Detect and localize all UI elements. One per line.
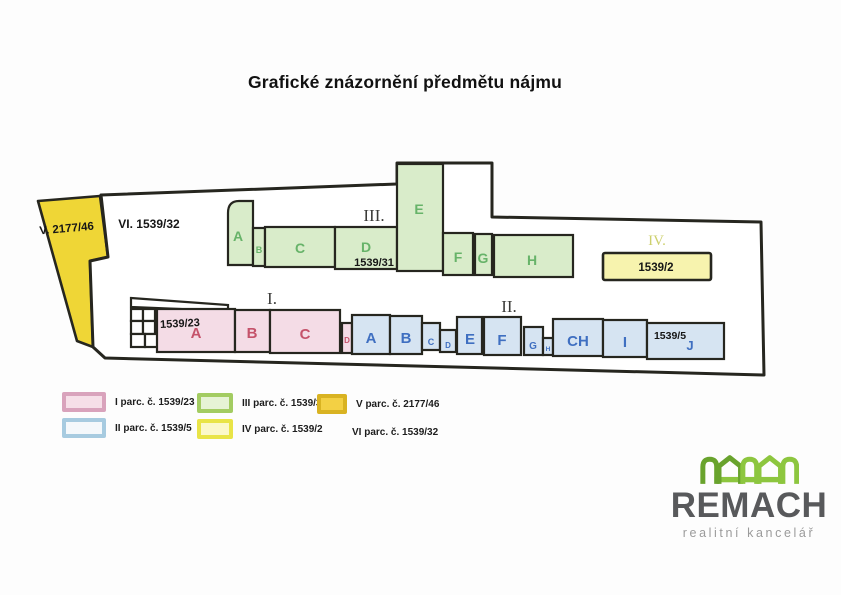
unit-label: F	[454, 249, 463, 265]
legend-item: I parc. č. 1539/23	[62, 392, 195, 412]
legend-label: II parc. č. 1539/5	[115, 423, 192, 434]
unit-label: A	[366, 330, 377, 347]
scanned-document-page: Grafické znázornění předmětu nájmu A B C…	[0, 0, 841, 595]
unit-label: I	[623, 334, 627, 351]
floor-plan-diagram: A B C D E F G H III. 1539/31 IV. 1539/2 …	[0, 0, 841, 460]
section-ii-numeral: II.	[501, 297, 517, 316]
logo-tagline-text: realitní kancelář	[683, 526, 815, 540]
unit-label: D	[344, 336, 350, 345]
houses-baseline	[714, 477, 783, 482]
unit-label: C	[295, 240, 305, 256]
unit-label: B	[401, 330, 412, 347]
annex-cell	[143, 309, 155, 321]
annex-cell	[131, 321, 143, 334]
annex-cell	[143, 321, 155, 334]
parcel-vi-label: VI. 1539/32	[118, 217, 180, 231]
section-iv-numeral: IV.	[648, 233, 666, 249]
unit-label: B	[256, 245, 263, 255]
houses-roofline-icon	[699, 454, 799, 486]
unit-label: C	[300, 326, 311, 343]
legend-swatch	[197, 419, 233, 439]
unit-label: G	[529, 341, 537, 352]
section-iv-parcel: 1539/2	[638, 262, 673, 274]
legend-item: II parc. č. 1539/5	[62, 418, 192, 438]
legend-item: VI parc. č. 1539/32	[352, 427, 438, 438]
unit-label: J	[686, 338, 693, 353]
section-i-parcel: 1539/23	[160, 317, 200, 331]
legend-swatch	[62, 418, 106, 438]
unit-label: E	[414, 201, 423, 217]
legend-label: V parc. č. 2177/46	[356, 399, 439, 410]
legend-item: III parc. č. 1539/31	[197, 393, 327, 413]
unit-label: E	[465, 331, 475, 348]
house-arch	[783, 459, 797, 484]
annex-cell	[131, 309, 143, 321]
unit-box-iii-e	[397, 164, 443, 271]
legend-label: I parc. č. 1539/23	[115, 397, 195, 408]
unit-label: D	[445, 341, 451, 350]
unit-label: CH	[567, 333, 589, 350]
house-arch	[703, 459, 717, 484]
unit-label: A	[233, 228, 243, 244]
unit-label: B	[247, 325, 258, 342]
remach-logo: REMACH realitní kancelář	[660, 454, 838, 540]
legend-swatch	[62, 392, 106, 412]
section-i-numeral: I.	[267, 289, 277, 308]
legend-item: V parc. č. 2177/46	[317, 394, 439, 414]
logo-brand-text: REMACH	[671, 488, 828, 523]
legend-swatch	[317, 394, 347, 414]
unit-label: G	[478, 250, 489, 266]
legend-item: IV parc. č. 1539/2	[197, 419, 323, 439]
legend-label: III parc. č. 1539/31	[242, 398, 327, 409]
unit-label: H	[546, 346, 551, 353]
legend-swatch	[197, 393, 233, 413]
annex-cell	[131, 334, 145, 347]
unit-label: D	[361, 239, 371, 255]
section-iii-parcel: 1539/31	[354, 257, 394, 269]
section-iii-numeral: III.	[363, 206, 384, 225]
legend-label: VI parc. č. 1539/32	[352, 427, 438, 438]
unit-label: H	[527, 252, 537, 268]
section-ii-parcel: 1539/5	[654, 330, 686, 342]
unit-label: F	[497, 332, 506, 349]
unit-label: C	[428, 337, 435, 347]
legend-label: IV parc. č. 1539/2	[242, 424, 323, 435]
